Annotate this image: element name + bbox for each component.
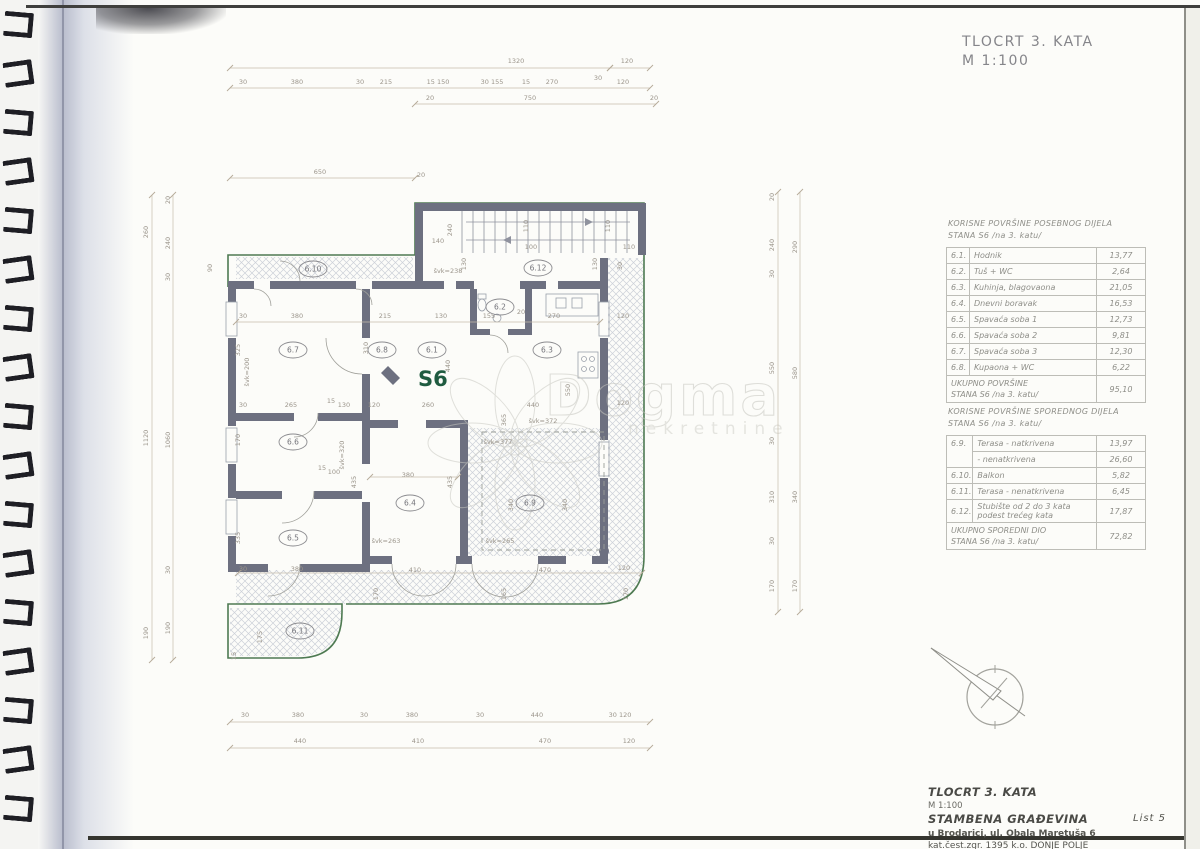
dim-label: 15 [230, 652, 238, 660]
dim-label: 30 [768, 437, 776, 445]
table-row: - nenatkrivena26,60 [947, 452, 1146, 468]
binding-hole [2, 353, 34, 382]
watermark-sub: nekretnine [628, 419, 790, 439]
dim-label: 110 [522, 220, 530, 232]
table-title-line2: STANA S6 /na 3. katu/ [948, 231, 1042, 240]
table-row: 6.4.Dnevni boravak16,53 [947, 296, 1146, 312]
dim-label: 650 [314, 168, 326, 176]
dim-label: švk=377 [484, 438, 513, 446]
room-label: 6.8 [376, 346, 388, 355]
dim-label: 470 [539, 737, 551, 745]
dim-label: 170 [372, 588, 380, 600]
binding-hole [2, 59, 34, 88]
dim-label: 435 [350, 476, 358, 488]
dim-label: 190 [142, 627, 150, 639]
north-arrow-icon [925, 642, 1035, 732]
room-label: 6.1 [426, 346, 438, 355]
floor-plan: Dogma nekretnine 1320120303803021515 150… [140, 45, 900, 790]
areas-table-special: KORISNE POVRŠINE POSEBNOG DIJELA STANA S… [946, 218, 1146, 403]
dim-label: 30 [768, 270, 776, 278]
binding-hole [2, 157, 34, 186]
gutter-shadow [38, 0, 134, 849]
dim-label: 380 [292, 711, 304, 719]
dim-label: 120 [617, 78, 629, 86]
dim-label: 365 [500, 414, 508, 426]
dim-label: 340 [791, 491, 799, 503]
dim-label: 30 [616, 262, 624, 270]
dim-label: švk=265 [486, 537, 515, 545]
dim-label: 20 [768, 193, 776, 201]
page-right-margin [1186, 8, 1200, 849]
dim-label: 140 [432, 237, 444, 245]
binding-hole [2, 255, 34, 284]
list-label: List 5 [1133, 813, 1166, 824]
dim-label: 30 [476, 711, 484, 719]
dim-label: 170 [768, 580, 776, 592]
dim-label: 260 [142, 226, 150, 238]
room-label: 6.12 [530, 264, 547, 273]
dim-label: 440 [294, 737, 306, 745]
dim-label: švk=263 [372, 537, 401, 545]
dim-label: 440 [531, 711, 543, 719]
page-crease [62, 0, 64, 849]
dim-label: 15 [327, 397, 335, 405]
binding-hole [2, 549, 34, 578]
dim-label: 15 150 [427, 78, 450, 86]
dim-label: 15 [522, 78, 530, 86]
dim-label: 120 [618, 564, 630, 572]
dim-label: švk=320 [338, 441, 346, 470]
dim-label: 580 [791, 367, 799, 379]
dim-label: 260 [422, 401, 434, 409]
scanned-sheet: TLOCRT 3. KATA M 1:100 [0, 0, 1200, 849]
room-label: 6.6 [287, 438, 299, 447]
room-label: 6.3 [541, 346, 553, 355]
binding-hole [3, 795, 34, 822]
binding-hole [3, 11, 34, 38]
dim-label: 130 [338, 401, 350, 409]
dim-label: 30 [356, 78, 364, 86]
dim-label: 20 [517, 308, 525, 316]
binding-hole [3, 207, 34, 234]
dim-label: 170 [622, 588, 630, 600]
dim-label: 240 [446, 224, 454, 236]
dim-label: 1120 [142, 430, 150, 447]
unit-label: S6 [418, 367, 448, 391]
dim-label: 310 [768, 491, 776, 503]
binding-hole [2, 647, 34, 676]
dim-label: 270 [548, 312, 560, 320]
table-row: 6.11.Terasa - nenatkrivena6,45 [947, 484, 1146, 500]
dim-label: 30 [239, 401, 247, 409]
page-right-edge [1184, 8, 1186, 849]
dim-label: švk=238 [434, 267, 463, 275]
table-row: 6.10.Balkon5,82 [947, 468, 1146, 484]
dim-label: 410 [409, 566, 421, 574]
dim-label: 240 [768, 239, 776, 251]
table-row: 6.8.Kupaona + WC6,22 [947, 360, 1146, 376]
dim-label: 190 [164, 622, 172, 634]
dim-label: 30 [241, 711, 249, 719]
binding-hole [3, 599, 34, 626]
dim-label: 380 [402, 471, 414, 479]
dim-label: 30 [594, 74, 602, 82]
table-title: KORISNE POVRŠINE POSEBNOG DIJELA STANA S… [948, 218, 1146, 242]
dim-label: 30 [164, 566, 172, 574]
dim-label: 110 [604, 220, 612, 232]
room-label: 6.9 [524, 499, 536, 508]
title-block-address: u Brodarici, ul. Obala Maretuša 6 [928, 828, 1188, 840]
dim-label: 325 [234, 344, 242, 356]
sheet-title-block: TLOCRT 3. KATA M 1:100 [962, 33, 1094, 71]
dim-label: 290 [791, 241, 799, 253]
title-block-scale: M 1:100 [928, 801, 1188, 812]
table-row: 6.2.Tuš + WC2,64 [947, 264, 1146, 280]
binding-hole [3, 305, 34, 332]
table-title-line1: KORISNE POVRŠINE POSEBNOG DIJELA [948, 219, 1112, 228]
dim-label: 30 [164, 273, 172, 281]
room-label: 6.10 [305, 265, 322, 274]
table-title-line2: STANA S6 /na 3. katu/ [948, 419, 1042, 428]
dim-label: 750 [524, 94, 536, 102]
dim-label: 120 [623, 737, 635, 745]
dim-label: 1060 [164, 432, 172, 449]
dim-label: 440 [527, 401, 539, 409]
dim-label: 340 [561, 499, 569, 511]
dim-label: 120 [617, 312, 629, 320]
dim-label: 110 [623, 243, 635, 251]
room-label: 6.11 [292, 627, 309, 636]
binding-hole [2, 451, 34, 480]
table-row: 6.1.Hodnik13,77 [947, 248, 1146, 264]
dim-label: 90 [206, 264, 214, 272]
binding-hole [3, 403, 34, 430]
table-title-line1: KORISNE POVRŠINE SPOREDNOG DIJELA [948, 407, 1119, 416]
title-block-drawing-name: TLOCRT 3. KATA [928, 785, 1188, 801]
binding-hole [2, 745, 34, 774]
dim-label: 380 [406, 711, 418, 719]
dim-label: 270 [546, 78, 558, 86]
dim-label: 550 [768, 362, 776, 374]
room-label: 6.2 [494, 303, 506, 312]
table-title: KORISNE POVRŠINE SPOREDNOG DIJELA STANA … [948, 406, 1146, 430]
dim-label: 120 [621, 57, 633, 65]
binding-hole [3, 109, 34, 136]
dim-label: 215 [379, 312, 391, 320]
title-block-cadastre: kat.čest.zgr. 1395 k.o. DONJE POLJE [928, 840, 1188, 849]
dim-label: 340 [507, 499, 515, 511]
dim-label: 380 [291, 312, 303, 320]
dim-label: švk=200 [243, 358, 251, 387]
dim-label: 165 [500, 588, 508, 600]
dim-label: 120 [617, 399, 629, 407]
dim-label: 1320 [508, 57, 525, 65]
dim-label: 155 [483, 312, 495, 320]
page-curl-shadow [96, 8, 226, 34]
dim-label: 20 [417, 171, 425, 179]
table-row: 6.6.Spavaća soba 29,81 [947, 328, 1146, 344]
dim-label: 410 [412, 737, 424, 745]
spiral-binding [0, 0, 40, 849]
total-row: UKUPNO POVRŠINESTANA S6 /na 3. katu/95,1… [947, 376, 1146, 403]
dim-label: 335 [234, 532, 242, 544]
sheet-scale: M 1:100 [962, 52, 1094, 71]
room-label: 6.5 [287, 534, 299, 543]
dim-label: 470 [539, 566, 551, 574]
dim-label: 15 [318, 464, 326, 472]
table-row: 6.7.Spavaća soba 312,30 [947, 344, 1146, 360]
room-label: 6.7 [287, 346, 299, 355]
dim-label: 170 [234, 434, 242, 446]
binding-hole [3, 697, 34, 724]
dim-label: 265 [285, 401, 297, 409]
dim-label: 175 [256, 631, 264, 643]
table-row: 6.9.Terasa - natkrivena13,97 [947, 436, 1146, 452]
table-row: 6.12.Stubište od 2 do 3 katapodest treće… [947, 500, 1146, 523]
dim-label: 30 [239, 565, 247, 573]
sheet-title: TLOCRT 3. KATA [962, 33, 1094, 52]
table-row: 6.5.Spavaća soba 112,73 [947, 312, 1146, 328]
dim-label: švk=372 [529, 417, 558, 425]
areas-table-secondary: KORISNE POVRŠINE SPOREDNOG DIJELA STANA … [946, 406, 1146, 550]
table-row: 6.3.Kuhinja, blagovaona21,05 [947, 280, 1146, 296]
dim-label: 170 [791, 580, 799, 592]
dim-label: 30 [768, 537, 776, 545]
dim-label: 130 [435, 312, 447, 320]
binding-hole [3, 501, 34, 528]
dim-label: 20 [426, 94, 434, 102]
dim-label: 30 155 [481, 78, 504, 86]
dim-label: 215 [380, 78, 392, 86]
room-label: 6.4 [404, 499, 416, 508]
dim-label: 120 [368, 401, 380, 409]
dim-label: 30 [360, 711, 368, 719]
total-row: UKUPNO SPOREDNI DIOSTANA S6 /na 3. katu/… [947, 523, 1146, 550]
dim-label: 550 [564, 384, 572, 396]
dim-label: 380 [291, 565, 303, 573]
dim-label: 100 [525, 243, 537, 251]
dim-label: 130 [591, 258, 599, 270]
dim-label: 30 [239, 78, 247, 86]
dim-label: 30 120 [609, 711, 632, 719]
dim-label: 20 [164, 196, 172, 204]
dim-label: 435 [446, 476, 454, 488]
dim-label: 20 [650, 94, 658, 102]
dim-label: 380 [291, 78, 303, 86]
dim-label: 240 [164, 237, 172, 249]
page-top-edge [26, 5, 1200, 8]
dim-label: 30 [239, 312, 247, 320]
